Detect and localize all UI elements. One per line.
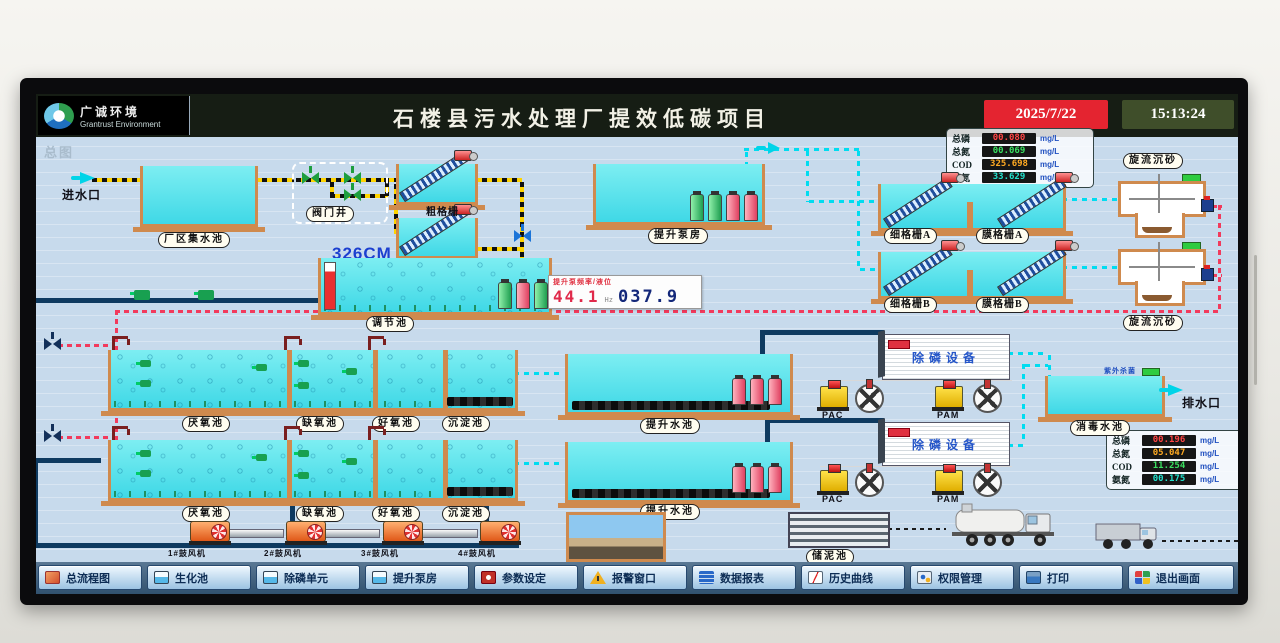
pump-icon[interactable]	[750, 466, 764, 493]
toolbar-button-permissions[interactable]: 权限管理	[910, 565, 1014, 590]
submersible-mixer-icon	[140, 450, 151, 457]
membrane-screen-b-label: 膜格栅B	[976, 297, 1029, 313]
pump-icon[interactable]	[732, 378, 746, 405]
water-dash	[857, 151, 860, 270]
param-value: 00.069	[982, 146, 1036, 157]
grit-dirt	[1142, 227, 1172, 233]
tank-icon	[372, 571, 387, 584]
sludge-dash	[1218, 205, 1221, 312]
page-tag: 总图	[44, 142, 74, 161]
water-dash	[514, 462, 564, 465]
valve-stem	[309, 166, 312, 173]
panel-row: COD11.254mg/L	[1112, 460, 1238, 473]
submersible-mixer-icon	[140, 470, 151, 477]
toolbar-button-label: 打印	[1047, 570, 1069, 586]
param-value: 05.047	[1142, 448, 1196, 459]
toolbar-button-label: 退出画面	[1156, 570, 1200, 586]
param-label: 总氮	[952, 145, 978, 158]
toolbar-button-label: 权限管理	[938, 570, 982, 586]
feed-pump-icon[interactable]	[134, 290, 150, 300]
uv-status-indicator	[1142, 368, 1160, 376]
toolbar-button-biotank[interactable]: 生化池	[147, 565, 251, 590]
status-badge	[888, 428, 910, 437]
logo-box: 广诚环境 Grantrust Environment	[38, 96, 190, 135]
pipe-dash	[252, 178, 294, 182]
param-value: 00.175	[1142, 474, 1196, 485]
diffuser-strip	[114, 401, 440, 407]
sludge-truck	[1092, 516, 1164, 552]
bio-train-1[interactable]	[108, 350, 518, 411]
pump-icon[interactable]	[516, 282, 530, 309]
param-value: 325.698	[982, 159, 1036, 170]
pump-icon[interactable]	[768, 378, 782, 405]
screen-motor-icon	[1055, 240, 1073, 251]
settled-sludge	[447, 487, 513, 496]
grit-chamber-1[interactable]	[1118, 181, 1206, 217]
anaerobic-label-2: 厌氧池	[182, 506, 230, 522]
valve-icon[interactable]	[344, 189, 361, 201]
bottom-toolbar: 总流程图 生化池 除磷单元 提升泵房 参数设定 报警窗口 数据报表 历史曲线 权…	[36, 562, 1238, 594]
toolbar-button-overview[interactable]: 总流程图	[38, 565, 142, 590]
toolbar-button-parameters[interactable]: 参数设定	[474, 565, 578, 590]
sedimentation-label-2: 沉淀池	[442, 506, 490, 522]
tank-icon	[154, 571, 169, 584]
feed-pump-icon[interactable]	[198, 290, 214, 300]
pam-doser-pump[interactable]	[935, 470, 963, 492]
toolbar-button-label: 生化池	[175, 570, 208, 586]
param-unit: mg/L	[1040, 134, 1059, 143]
pump-value-display: 提升泵频率/液位 44.1 Hz 037.9	[548, 275, 702, 309]
pump-icon[interactable]	[732, 466, 746, 493]
grit-funnel	[1135, 281, 1185, 306]
outflow-arrow-icon	[1168, 384, 1183, 396]
toolbar-button-label: 总流程图	[66, 570, 110, 586]
water-dash	[1062, 266, 1118, 269]
param-value: 00.196	[1142, 435, 1196, 446]
submersible-mixer-icon	[346, 458, 357, 465]
pump-frequency-unit: Hz	[605, 296, 613, 304]
param-value: 11.254	[1142, 461, 1196, 472]
fine-screen-b-label: 细格栅B	[884, 297, 937, 313]
param-unit: mg/L	[1200, 436, 1219, 445]
toolbar-button-label: 参数设定	[502, 570, 546, 586]
tank-icon	[263, 571, 278, 584]
panel-row: 氨氮00.175mg/L	[1112, 473, 1238, 486]
sludge-dash	[58, 436, 115, 439]
diffuser-strip	[324, 305, 546, 311]
blower-1-label: 1#鼓风机	[168, 548, 206, 559]
uv-label: 紫外杀菌	[1104, 366, 1136, 376]
water-dash	[1008, 444, 1024, 447]
phosphorus-removal-label-2: 除磷设备	[912, 436, 980, 453]
valve-stem	[51, 332, 54, 339]
grit-chamber-label-top: 旋流沉砂	[1123, 153, 1183, 169]
toolbar-button-label: 数据报表	[720, 570, 764, 586]
panel-row: 总氮00.069mg/L	[952, 145, 1088, 158]
pump-icon[interactable]	[690, 194, 704, 221]
toolbar-button-label: 报警窗口	[612, 570, 656, 586]
blower-1[interactable]	[190, 521, 230, 542]
sedimentation-label-1: 沉淀池	[442, 416, 490, 432]
valve-icon[interactable]	[514, 230, 531, 242]
truck-dash	[888, 528, 946, 530]
panel-row: 总磷00.196mg/L	[1112, 434, 1238, 447]
toolbar-button-print[interactable]: 打印	[1019, 565, 1123, 590]
water-dash	[1022, 364, 1025, 444]
tank-divider	[373, 440, 378, 498]
aerobic-label-2: 好氧池	[372, 506, 420, 522]
collection-tank[interactable]	[140, 166, 258, 227]
water-dash	[1025, 364, 1048, 367]
toolbar-button-label: 提升泵房	[393, 570, 437, 586]
param-value: 00.080	[982, 133, 1036, 144]
flow-arrow-icon	[768, 142, 780, 154]
diffuser-strip	[114, 491, 440, 497]
coarse-screen-label: 粗格栅	[426, 203, 459, 218]
channel-divider	[967, 202, 973, 228]
disinfection-tank-label: 消毒水池	[1070, 420, 1130, 436]
submersible-mixer-icon	[256, 454, 267, 461]
hmi-display: 广诚环境 Grantrust Environment 石楼县污水处理厂提效低碳项…	[36, 94, 1238, 594]
toolbar-button-phosphorus[interactable]: 除磷单元	[256, 565, 360, 590]
submersible-mixer-icon	[140, 360, 151, 367]
grit-pump-icon[interactable]	[1201, 199, 1214, 212]
pam-doser-pump[interactable]	[935, 386, 963, 408]
screen-motor-icon	[941, 172, 959, 183]
tank-divider	[287, 350, 292, 408]
tank-level-value: 037.9	[618, 287, 679, 307]
water-dash	[514, 372, 564, 375]
pump-icon[interactable]	[498, 282, 512, 309]
blower-4-label: 4#鼓风机	[458, 548, 496, 559]
panel-row: COD325.698mg/L	[952, 158, 1088, 171]
param-unit: mg/L	[1200, 462, 1219, 471]
membrane-screen-a-label: 膜格栅A	[976, 228, 1029, 244]
param-unit: mg/L	[1200, 475, 1219, 484]
company-logo-icon	[44, 103, 74, 129]
pipe	[36, 458, 101, 463]
toolbar-button-reports[interactable]: 数据报表	[692, 565, 796, 590]
grit-pump-icon[interactable]	[1201, 268, 1214, 281]
wall-cable	[1254, 255, 1257, 385]
regulation-tank-label: 调节池	[366, 316, 414, 332]
water-dash	[1062, 198, 1118, 201]
submersible-mixer-icon	[346, 368, 357, 375]
valve-icon[interactable]	[44, 430, 61, 442]
grit-funnel	[1135, 213, 1185, 238]
valve-icon[interactable]	[302, 172, 319, 184]
pump-icon[interactable]	[750, 378, 764, 405]
toolbar-button-alarms[interactable]: 报警窗口	[583, 565, 687, 590]
disinfection-tank[interactable]	[1045, 376, 1165, 417]
screen-motor-icon	[941, 240, 959, 251]
toolbar-button-trends[interactable]: 历史曲线	[801, 565, 905, 590]
pac-label-2: PAC	[822, 494, 843, 504]
param-label: COD	[952, 160, 978, 170]
param-label: 总磷	[952, 132, 978, 145]
pump-icon[interactable]	[768, 466, 782, 493]
pump-icon[interactable]	[726, 194, 740, 221]
toolbar-button-label: 除磷单元	[284, 570, 328, 586]
page-title: 石楼县污水处理厂提效低碳项目	[196, 103, 968, 133]
phosphorus-removal-label-1: 除磷设备	[912, 349, 980, 366]
param-value: 33.629	[982, 172, 1036, 183]
lift-tank-label-1: 提升水池	[640, 418, 700, 434]
logo-name-cn: 广诚环境	[80, 103, 160, 120]
water-dash	[806, 151, 809, 202]
param-label: COD	[1112, 462, 1138, 472]
status-badge	[888, 340, 910, 349]
blower-pipe	[322, 529, 380, 538]
pipe	[760, 330, 884, 335]
collection-tank-label: 厂区集水池	[158, 232, 230, 248]
pump-display-caption: 提升泵频率/液位	[553, 277, 697, 287]
blower-2-label: 2#鼓风机	[264, 548, 302, 559]
pump-icon[interactable]	[708, 194, 722, 221]
bio-train-2[interactable]	[108, 440, 518, 501]
pump-frequency-value: 44.1	[553, 287, 600, 306]
submersible-mixer-icon	[298, 360, 309, 367]
settled-sludge	[447, 397, 513, 406]
level-indicator	[324, 262, 336, 310]
truck-dash	[1162, 540, 1238, 542]
inflow-arrow-icon	[80, 172, 95, 184]
blower-3[interactable]	[383, 521, 423, 542]
sludge-dash	[58, 344, 115, 347]
submersible-mixer-icon	[298, 450, 309, 457]
valve-well-label: 阀门井	[306, 206, 354, 222]
fine-screen-a-label: 细格栅A	[884, 228, 937, 244]
water-dash	[1048, 355, 1051, 376]
sludge-storage-tank[interactable]	[788, 512, 890, 548]
printer-icon	[1026, 571, 1041, 584]
site-photo	[566, 512, 666, 562]
valve-stem	[521, 224, 524, 231]
outlet-label: 排水口	[1182, 394, 1221, 411]
water-dash	[809, 200, 880, 203]
pipe	[36, 298, 318, 303]
pam-label-1: PAM	[937, 410, 959, 420]
dosing-mixer-icon[interactable]	[855, 384, 884, 413]
sludge-tanker-truck	[948, 498, 1063, 550]
blower-3-label: 3#鼓风机	[361, 548, 399, 559]
param-label: 氨氮	[1112, 473, 1138, 486]
toolbar-button-pumphouse[interactable]: 提升泵房	[365, 565, 469, 590]
dosing-mixer-icon[interactable]	[973, 468, 1002, 497]
effluent-quality-panel: 总磷00.196mg/L 总氮05.047mg/L COD11.254mg/L …	[1106, 430, 1238, 490]
pipe-dash	[472, 178, 522, 182]
screen-motor-icon	[1055, 172, 1073, 183]
channel-divider	[967, 270, 973, 296]
blower-pipe	[420, 529, 478, 538]
water-dash	[1008, 352, 1048, 355]
pump-icon[interactable]	[744, 194, 758, 221]
pipe	[36, 458, 38, 544]
grit-chamber-label-bottom: 旋流沉砂	[1123, 315, 1183, 331]
time-display: 15:13:24	[1122, 100, 1234, 129]
trend-curve-icon	[808, 571, 823, 584]
param-unit: mg/L	[1040, 160, 1059, 169]
settings-icon	[481, 571, 496, 584]
pump-icon[interactable]	[534, 282, 548, 309]
tank-divider	[373, 350, 378, 408]
submersible-mixer-icon	[298, 472, 309, 479]
grit-dirt	[1142, 295, 1172, 301]
pipe-dash	[520, 182, 524, 260]
pac-label-1: PAC	[822, 410, 843, 420]
exit-icon	[1135, 571, 1150, 584]
inlet-label: 进水口	[62, 186, 101, 203]
submersible-mixer-icon	[298, 382, 309, 389]
submersible-mixer-icon	[256, 364, 267, 371]
tank-divider	[287, 440, 292, 498]
submersible-mixer-icon	[140, 380, 151, 387]
pac-doser-pump[interactable]	[820, 470, 848, 492]
valve-stem	[351, 166, 354, 173]
pac-doser-pump[interactable]	[820, 386, 848, 408]
dosing-mixer-icon[interactable]	[973, 384, 1002, 413]
param-unit: mg/L	[1040, 147, 1059, 156]
panel-row: 总磷00.080mg/L	[952, 132, 1088, 145]
user-permission-icon	[917, 571, 932, 584]
anaerobic-label-1: 厌氧池	[182, 416, 230, 432]
blower-4[interactable]	[480, 521, 520, 542]
valve-stem	[51, 424, 54, 431]
param-unit: mg/L	[1200, 449, 1219, 458]
alarm-warning-icon	[590, 571, 606, 584]
dosing-mixer-icon[interactable]	[855, 468, 884, 497]
blower-2[interactable]	[286, 521, 326, 542]
data-report-icon	[699, 571, 714, 584]
toolbar-button-label: 历史曲线	[829, 570, 873, 586]
flow-diagram-icon	[45, 571, 60, 584]
anoxic-label-2: 缺氧池	[296, 506, 344, 522]
sludge-dash	[115, 310, 1221, 313]
date-display: 2025/7/22	[984, 100, 1108, 129]
valve-stem	[351, 183, 354, 190]
grit-chamber-2[interactable]	[1118, 249, 1206, 285]
logo-name-en: Grantrust Environment	[80, 120, 160, 129]
lift-pump-house-label: 提升泵房	[648, 228, 708, 244]
panel-row: 总氮05.047mg/L	[1112, 447, 1238, 460]
anoxic-label-1: 缺氧池	[296, 416, 344, 432]
toolbar-button-exit[interactable]: 退出画面	[1128, 565, 1234, 590]
param-label: 总氮	[1112, 447, 1138, 460]
blower-pipe	[228, 529, 284, 538]
water-dash	[860, 268, 880, 271]
valve-icon[interactable]	[44, 338, 61, 350]
screen-motor-icon	[454, 150, 472, 161]
pipe-dash	[472, 247, 522, 251]
